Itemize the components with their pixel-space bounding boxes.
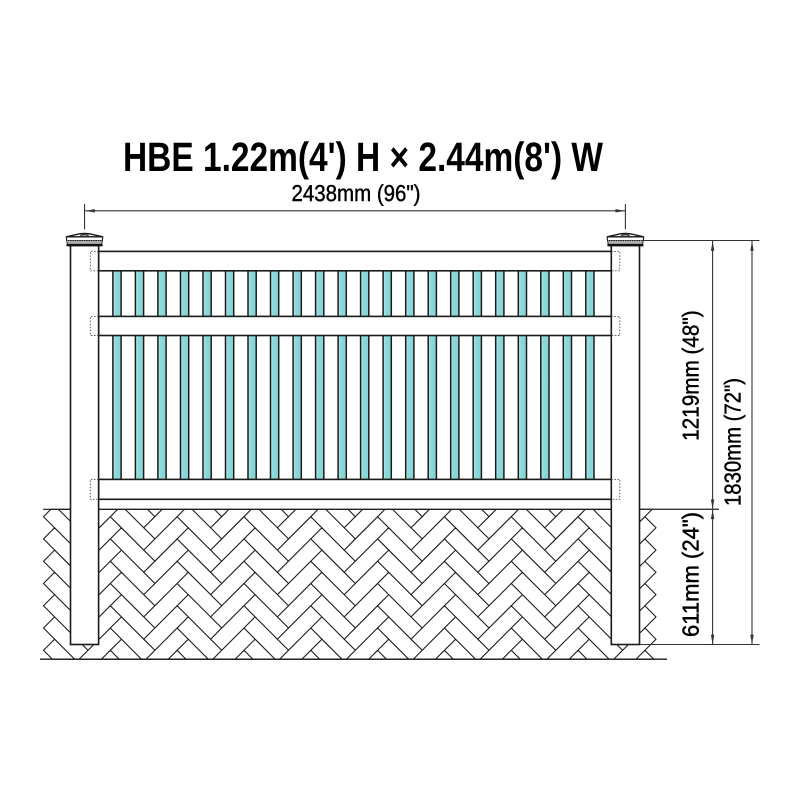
svg-text:2438mm (96"): 2438mm (96") (292, 180, 421, 206)
svg-text:HBE 1.22m(4') H × 2.44m(8') W: HBE 1.22m(4') H × 2.44m(8') W (123, 134, 603, 180)
svg-text:1219mm (48"): 1219mm (48") (678, 310, 704, 441)
svg-text:1830mm (72"): 1830mm (72") (720, 378, 746, 506)
svg-text:611mm (24"): 611mm (24") (678, 512, 704, 637)
